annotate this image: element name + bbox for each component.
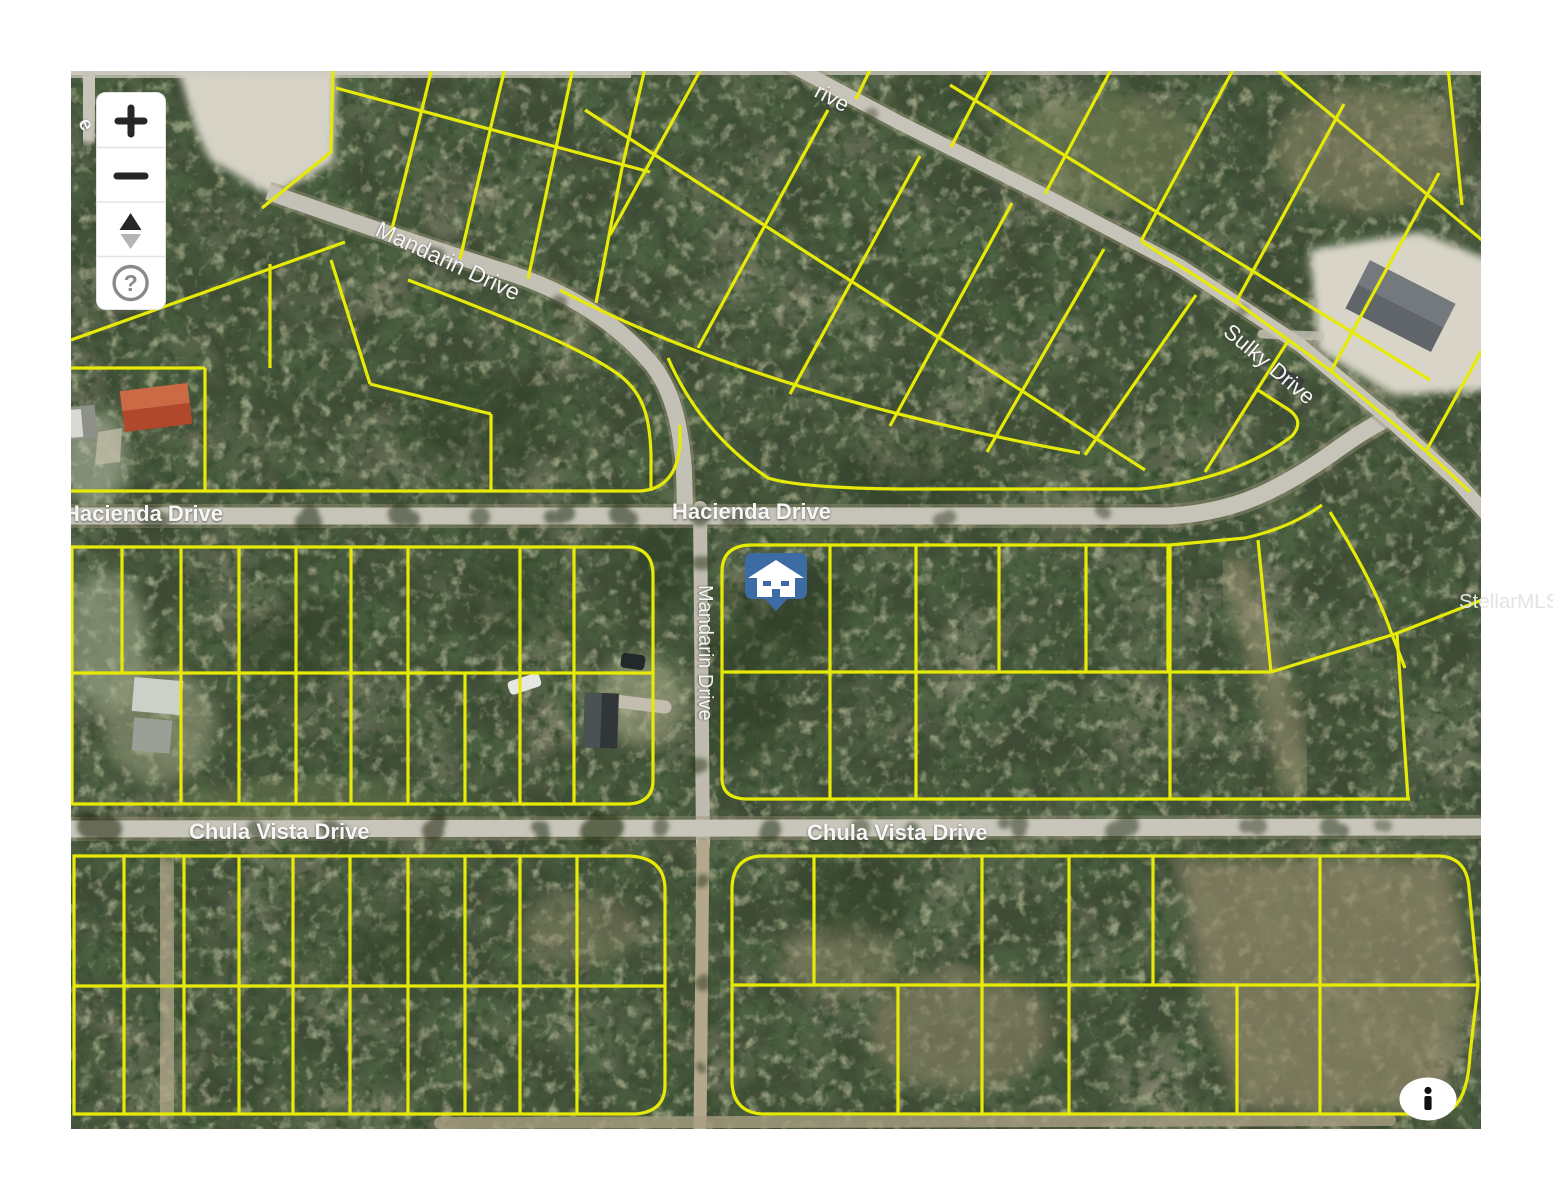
- svg-text:Chula Vista Drive: Chula Vista Drive: [807, 820, 988, 845]
- svg-text:Chula Vista Drive: Chula Vista Drive: [189, 819, 370, 844]
- svg-text:Mandarin Drive: Mandarin Drive: [694, 585, 716, 721]
- svg-text:Hacienda Drive: Hacienda Drive: [672, 499, 831, 524]
- svg-text:?: ?: [124, 270, 138, 296]
- svg-text:StellarMLS: StellarMLS: [1459, 590, 1553, 613]
- svg-text:Hacienda Drive: Hacienda Drive: [64, 501, 223, 526]
